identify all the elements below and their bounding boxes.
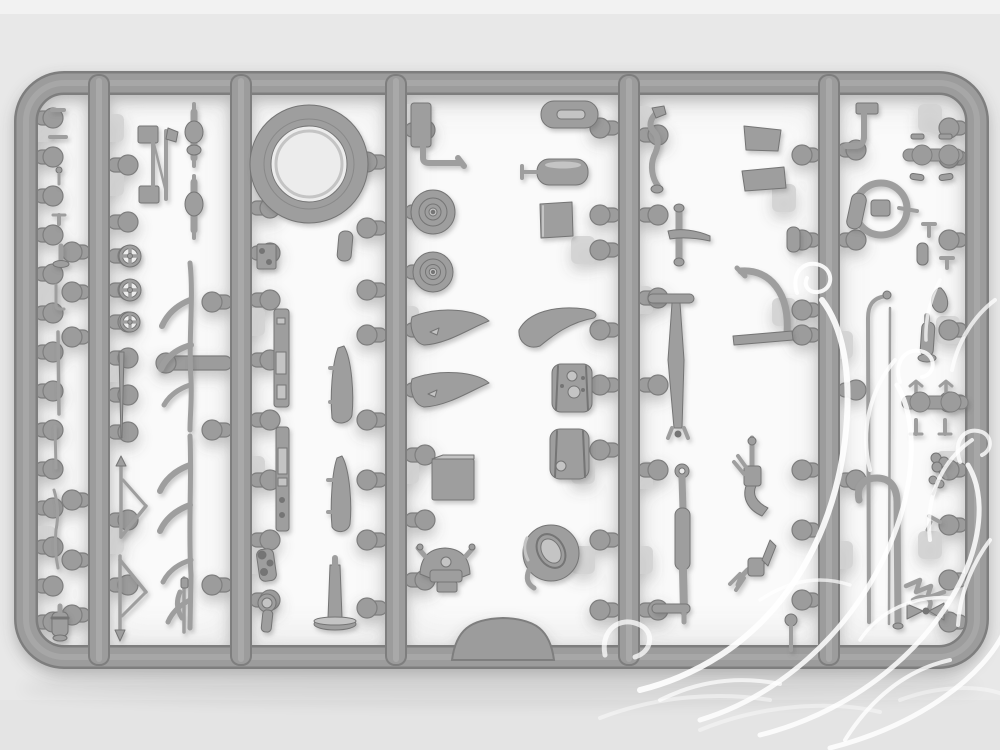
sprue-stub-nub [357, 598, 377, 618]
sprue-product-photo [0, 0, 1000, 750]
part-shape [261, 610, 273, 633]
part-shape [941, 392, 961, 412]
part-shape [277, 385, 286, 399]
part-shape [911, 134, 924, 139]
part-shape [582, 389, 585, 392]
part-shape [674, 258, 684, 266]
sprue-stub-nub [357, 410, 377, 430]
part-shape [561, 385, 564, 388]
part-shape [261, 569, 268, 576]
part-shape [923, 608, 929, 614]
sprue-stub-nub [590, 440, 610, 460]
sprue-stub-nub [62, 242, 82, 262]
small-cylinder [337, 230, 354, 261]
part-shape [267, 560, 273, 566]
runner-5-ridge [626, 78, 632, 662]
part-shape [545, 162, 581, 169]
sprue-stub-nub [792, 300, 812, 320]
sprue-stub-nub [590, 240, 610, 260]
part-shape [139, 186, 159, 203]
part-shape [185, 192, 203, 216]
sprue-stub-nub [202, 420, 222, 440]
sprue-stub-nub [648, 460, 668, 480]
sprue-stub-nub [43, 459, 63, 479]
part-shape [567, 371, 577, 381]
part-shape [280, 513, 285, 518]
sprue-stub-nub [260, 530, 280, 550]
part-shape [651, 185, 663, 193]
runner-2 [88, 74, 110, 666]
sprue-stub-nub [43, 186, 63, 206]
part-shape [258, 551, 266, 559]
part-shape [939, 134, 952, 139]
part-shape [648, 294, 694, 303]
pulley-wheel-2 [119, 279, 141, 301]
part-shape [910, 392, 930, 412]
sprue-stub-nub [118, 212, 138, 232]
barrel-upper [552, 364, 592, 412]
runner-5 [618, 74, 640, 666]
runner-6 [818, 74, 840, 666]
sprue-stub-nub [202, 575, 222, 595]
part-shape [267, 260, 272, 265]
sprue-stub-nub [260, 290, 280, 310]
part-shape [910, 173, 925, 181]
part-shape [185, 121, 203, 143]
part-shape [674, 204, 684, 212]
top-light-band [0, 0, 1000, 14]
sprue-stub-nub [939, 320, 959, 340]
sprue-stub-nub [62, 282, 82, 302]
part-shape [278, 448, 287, 474]
barrel-lower [550, 429, 589, 479]
sprue-stub-nub [62, 490, 82, 510]
part-shape [748, 558, 764, 576]
part-shape [675, 431, 681, 437]
sprue-stub-nub [43, 303, 63, 323]
part-shape [917, 243, 928, 265]
sprue-stub-nub [202, 292, 222, 312]
part-shape [277, 318, 285, 324]
part-shape [53, 261, 69, 268]
part-shape [744, 126, 781, 151]
part-shape [262, 598, 272, 608]
part-shape [912, 145, 932, 165]
sprue-stub-nub [648, 205, 668, 225]
part-shape [568, 386, 580, 398]
part-shape [431, 210, 435, 214]
part-shape [939, 145, 959, 165]
cube-block [432, 455, 474, 500]
part-shape [682, 478, 683, 510]
part-shape [257, 244, 276, 269]
slotted-capsule [541, 101, 598, 128]
thin-rod-long [58, 332, 59, 414]
sprue-stub-nub [118, 155, 138, 175]
sprue-stub-nub [590, 205, 610, 225]
part-shape [260, 249, 265, 254]
sprue-stub-nub [43, 225, 63, 245]
part-shape [437, 582, 457, 592]
sprue-stub-nub [792, 520, 812, 540]
part-shape [742, 167, 786, 191]
part-shape [939, 173, 954, 181]
frame-strip-lower [276, 427, 289, 531]
sprue-stub-nub [648, 375, 668, 395]
sprue-stub-nub [792, 325, 812, 345]
part-shape [53, 635, 67, 641]
part-shape [128, 288, 133, 293]
sprue-stub-nub [43, 537, 63, 557]
sprue-stub-nub [43, 147, 63, 167]
part-shape [128, 254, 133, 259]
part-shape [430, 570, 462, 582]
part-shape [58, 332, 59, 414]
part-shape [181, 578, 188, 588]
sprue-stub-nub [792, 460, 812, 480]
part-shape [540, 202, 573, 238]
sprue-stub-nub [939, 230, 959, 250]
sprue-stub-nub [62, 327, 82, 347]
pulley-wheel-3 [120, 312, 140, 332]
sprue-stub-nub [43, 498, 63, 518]
part-shape [893, 623, 903, 629]
sprue-stub-nub [357, 280, 377, 300]
sprue-stub-nub [590, 600, 610, 620]
sprue-stub-nub [590, 375, 610, 395]
part-shape [271, 126, 347, 202]
runner-2-ridge [96, 78, 102, 662]
sprue-stub-nub [43, 576, 63, 596]
part-shape [55, 426, 56, 468]
part-shape [871, 200, 890, 216]
trapezoid-pad-1 [744, 126, 781, 151]
sprue-stub-nub [590, 530, 610, 550]
part-shape [128, 320, 132, 324]
sprue-stub-nub [357, 218, 377, 238]
sprue-stub-nub [792, 145, 812, 165]
frame-strip-upper [274, 309, 289, 407]
small-block [257, 244, 276, 269]
runner-3 [230, 74, 252, 666]
part-shape [889, 308, 890, 624]
part-shape [432, 459, 474, 500]
part-shape [187, 145, 201, 155]
panel-box [540, 202, 573, 238]
part-shape [337, 230, 354, 261]
part-shape [787, 227, 800, 252]
sprue-stub-nub [846, 230, 866, 250]
part-shape [278, 478, 287, 486]
sprue-stub-nub [792, 590, 812, 610]
part-shape [675, 508, 690, 570]
sprue-stub-nub [43, 420, 63, 440]
part-shape [52, 612, 68, 636]
pulley-wheel-1 [119, 245, 141, 267]
runner-4-ridge [393, 78, 399, 662]
wheel-lower [413, 252, 453, 292]
sprue-stub-nub [590, 320, 610, 340]
part-shape [411, 103, 431, 147]
part-shape [679, 468, 685, 474]
part-shape [582, 377, 585, 380]
part-shape [280, 498, 285, 503]
part-shape [441, 557, 451, 567]
sprue-stub-nub [62, 550, 82, 570]
part-shape [469, 544, 475, 550]
sprue-stub-nub [415, 510, 435, 530]
part-shape [417, 544, 423, 550]
small-capsule [787, 227, 800, 252]
sprue-ground-shadow [20, 672, 980, 704]
sprue-stub-nub [357, 530, 377, 550]
runner-3-ridge [238, 78, 244, 662]
part-shape [932, 462, 942, 472]
runner-6-ridge [826, 78, 832, 662]
part-shape [557, 110, 585, 119]
runner-4 [385, 74, 407, 666]
thin-rod-short [55, 426, 56, 468]
part-shape [431, 270, 434, 273]
part-shape [328, 565, 342, 618]
mold-shadow-pad [918, 104, 942, 132]
sprue-stub-nub [357, 325, 377, 345]
sprue-stub-nub [357, 470, 377, 490]
sprue-stub-nub [939, 515, 959, 535]
trapezoid-pad-2 [742, 167, 786, 191]
part-shape [276, 352, 286, 374]
sprue-scene [0, 0, 1000, 750]
part-shape [314, 617, 356, 625]
part-shape [56, 167, 62, 173]
part-shape [556, 461, 566, 471]
main-tire [250, 105, 368, 223]
wheel-upper [411, 190, 455, 234]
part-shape [748, 437, 756, 445]
part-shape [883, 291, 891, 299]
